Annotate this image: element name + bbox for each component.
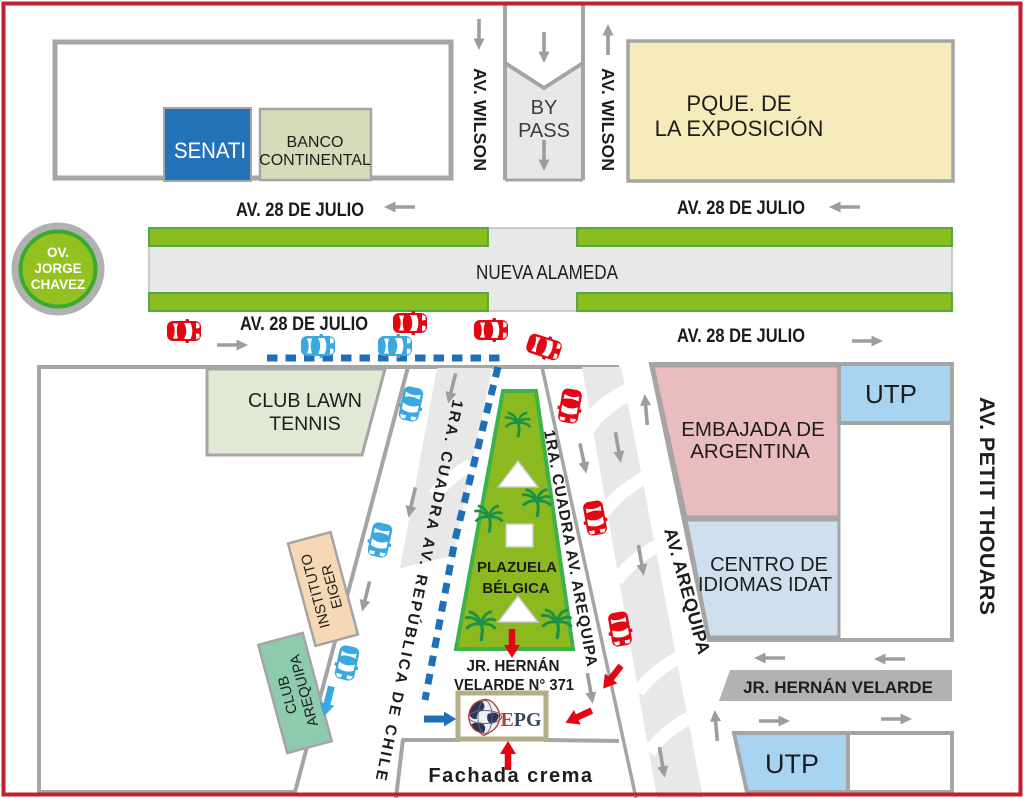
svg-text:LA EXPOSICIÓN: LA EXPOSICIÓN (655, 116, 824, 141)
svg-text:ARGENTINA: ARGENTINA (690, 440, 810, 463)
svg-text:JORGE: JORGE (34, 261, 81, 276)
svg-text:SENATI: SENATI (174, 138, 246, 163)
svg-text:BÉLGICA: BÉLGICA (482, 580, 550, 597)
svg-text:JR. HERNÁN: JR. HERNÁN (467, 656, 560, 675)
svg-text:AV. PETIT THOUARS: AV. PETIT THOUARS (975, 397, 999, 615)
svg-text:AV. 28 DE JULIO: AV. 28 DE JULIO (236, 200, 364, 221)
svg-text:AV. 28 DE JULIO: AV. 28 DE JULIO (677, 198, 805, 219)
svg-text:PASS: PASS (518, 120, 570, 142)
svg-text:JR. HERNÁN VELARDE: JR. HERNÁN VELARDE (743, 678, 933, 697)
svg-text:PQUE. DE: PQUE. DE (686, 91, 791, 116)
svg-text:UTP: UTP (765, 749, 819, 779)
svg-text:CENTRO DE: CENTRO DE (710, 554, 828, 576)
svg-text:BANCO: BANCO (287, 134, 344, 151)
svg-text:BY: BY (531, 97, 558, 119)
svg-text:EMBAJADA DE: EMBAJADA DE (681, 418, 825, 441)
svg-text:TENNIS: TENNIS (269, 413, 341, 435)
svg-text:IDIOMAS IDAT: IDIOMAS IDAT (698, 574, 832, 596)
svg-text:AV. WILSON: AV. WILSON (470, 68, 490, 171)
svg-text:UTP: UTP (865, 379, 917, 409)
svg-text:OV.: OV. (47, 245, 69, 260)
svg-text:AV. 28 DE JULIO: AV. 28 DE JULIO (240, 314, 368, 335)
svg-text:CONTINENTAL: CONTINENTAL (259, 152, 371, 169)
svg-text:AV. WILSON: AV. WILSON (598, 68, 618, 171)
svg-text:EPG: EPG (500, 709, 542, 731)
svg-text:CLUB LAWN: CLUB LAWN (248, 390, 362, 412)
svg-text:AV. 28 DE JULIO: AV. 28 DE JULIO (677, 326, 805, 347)
svg-text:NUEVA ALAMEDA: NUEVA ALAMEDA (476, 262, 619, 284)
svg-text:PLAZUELA: PLAZUELA (477, 559, 557, 576)
svg-text:CHAVEZ: CHAVEZ (31, 277, 86, 292)
